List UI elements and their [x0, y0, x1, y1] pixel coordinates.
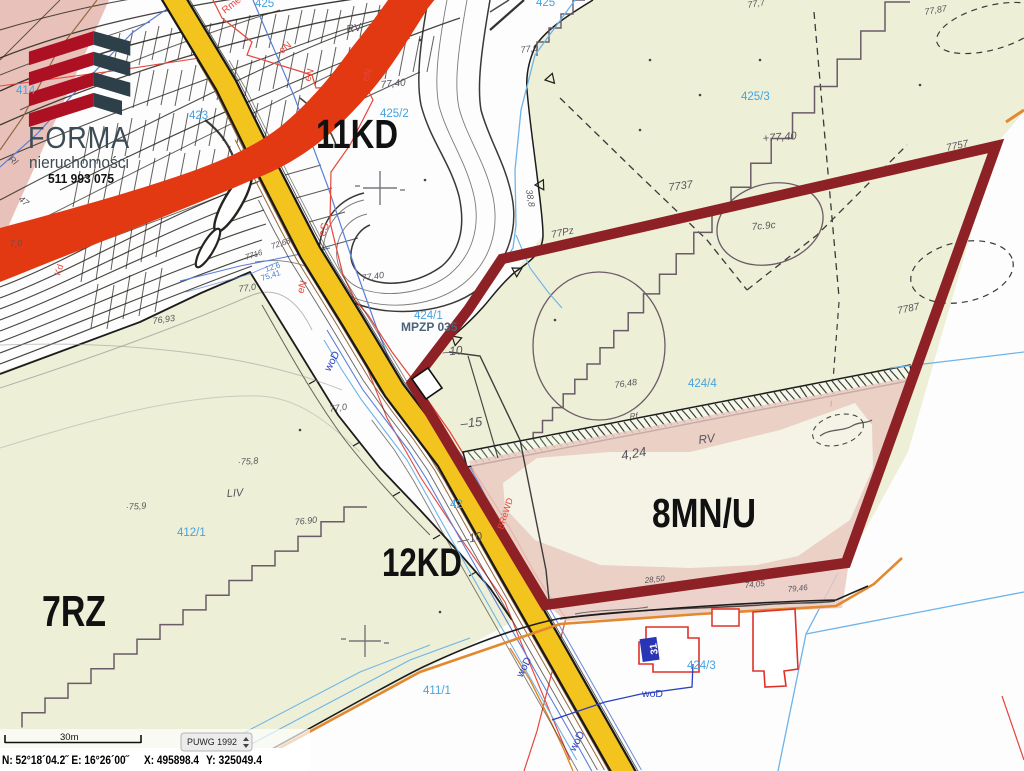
svg-text:423: 423: [189, 110, 208, 122]
svg-text:425/3: 425/3: [741, 91, 770, 103]
svg-text:N: 52°18´04.2˝ E: 16°26´00˝: N: 52°18´04.2˝ E: 16°26´00˝: [2, 753, 130, 767]
svg-text:RV: RV: [697, 431, 716, 447]
svg-text:511 993 075: 511 993 075: [48, 172, 114, 186]
svg-text:7RZ: 7RZ: [42, 587, 106, 636]
svg-text:·75,8: ·75,8: [237, 456, 258, 467]
svg-text:LIV: LIV: [226, 487, 245, 500]
svg-text:–10: –10: [441, 343, 464, 359]
svg-text:414: 414: [16, 85, 36, 97]
svg-text:411/1: 411/1: [423, 685, 451, 697]
svg-text:12KD: 12KD: [382, 541, 462, 585]
svg-text:412/1: 412/1: [177, 527, 206, 539]
svg-text:425: 425: [255, 0, 274, 10]
svg-text:X: 495898.4: X: 495898.4: [144, 753, 199, 767]
svg-text:–15: –15: [459, 414, 484, 431]
svg-text:MPZP 035: MPZP 035: [401, 320, 458, 334]
svg-text:·75,9: ·75,9: [125, 501, 146, 512]
svg-text:Y: 325049.4: Y: 325049.4: [206, 753, 262, 767]
svg-text:424/4: 424/4: [688, 378, 717, 390]
svg-text:31: 31: [648, 642, 661, 655]
svg-text:PUWG 1992: PUWG 1992: [187, 737, 237, 748]
svg-text:7,0: 7,0: [9, 238, 22, 249]
svg-text:425/2: 425/2: [380, 108, 409, 120]
svg-text:30m: 30m: [60, 732, 79, 743]
svg-text:7c.9c: 7c.9c: [751, 220, 776, 233]
svg-text:425: 425: [536, 0, 555, 9]
svg-text:woD: woD: [641, 688, 663, 700]
svg-text:42: 42: [450, 499, 463, 511]
svg-text:8MN/U: 8MN/U: [652, 490, 756, 536]
svg-text:424/3: 424/3: [687, 660, 716, 672]
svg-text:nieruchomości: nieruchomości: [29, 153, 129, 172]
svg-text:FORMA: FORMA: [28, 120, 130, 155]
